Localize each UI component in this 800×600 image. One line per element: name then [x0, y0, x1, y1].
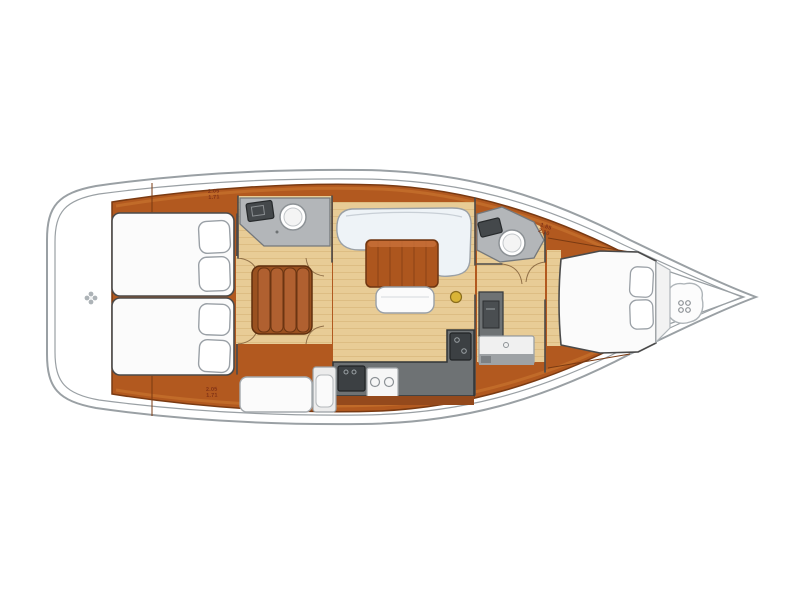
nav-station: [477, 292, 545, 365]
aft-head: [238, 196, 332, 262]
mast-step: [451, 292, 462, 303]
galley-toe-kick: [333, 396, 474, 405]
drain-dot: [276, 231, 279, 234]
stove: [367, 368, 398, 397]
berth-dimension-label-aft-starboard: 2.05 1.71: [206, 387, 218, 399]
fridge-lid: [316, 375, 333, 407]
galley-sink: [338, 366, 365, 391]
sideboard-top: [240, 377, 312, 412]
pillow: [198, 303, 230, 335]
wet-locker: [479, 292, 503, 336]
pillow: [630, 300, 654, 330]
dim-text-line2: 1.71: [206, 393, 218, 399]
bow-locker-shelf: [656, 262, 670, 342]
aft-cabin-port: [112, 213, 234, 296]
pillow: [198, 256, 230, 291]
berth-dimension-label-aft-port: 2.05 1.71: [208, 188, 220, 201]
pillow: [629, 266, 654, 297]
galley-appliance: [450, 333, 471, 360]
pillow: [198, 339, 231, 373]
dim-text-line2: 1.71: [208, 194, 220, 201]
floorplan-drawing: 2.05 1.71 2.05 1.71 1.85 2.10: [0, 0, 800, 600]
toilet-seat: [503, 234, 521, 252]
yacht-floorplan-image: 2.05 1.71 2.05 1.71 1.85 2.10: [0, 0, 800, 600]
companionway: [236, 256, 332, 344]
salon-table: [366, 240, 438, 287]
pillow: [198, 220, 231, 254]
sink: [246, 200, 274, 221]
toilet-seat: [284, 208, 302, 226]
salon-bench: [376, 287, 434, 313]
companionway-steps: [252, 266, 312, 334]
chart-table: [479, 336, 534, 365]
